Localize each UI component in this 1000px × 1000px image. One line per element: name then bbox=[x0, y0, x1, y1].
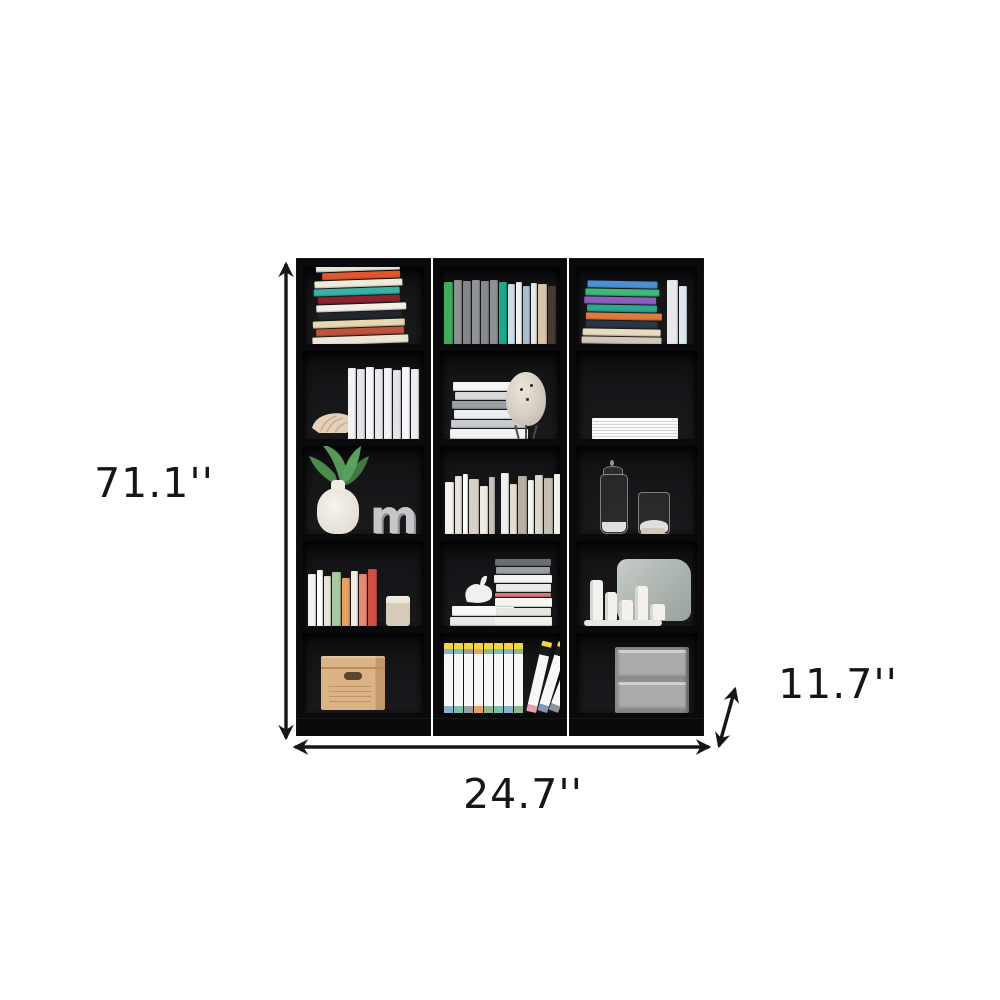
candle-tray bbox=[584, 620, 662, 626]
pillar-candle bbox=[590, 580, 603, 620]
depth-dimension-label: 11.7'' bbox=[768, 664, 908, 705]
product-dimension-diagram: m bbox=[0, 0, 1000, 1000]
pillar-candle bbox=[619, 600, 633, 620]
white-vase bbox=[317, 488, 359, 534]
pillar-candle bbox=[635, 586, 648, 620]
height-dimension-label: 71.1'' bbox=[84, 463, 224, 504]
depth-dimension-line bbox=[719, 689, 735, 746]
width-dimension-label: 24.7'' bbox=[453, 774, 593, 815]
pillar-candle bbox=[605, 592, 617, 620]
pillar-candle bbox=[650, 604, 665, 620]
